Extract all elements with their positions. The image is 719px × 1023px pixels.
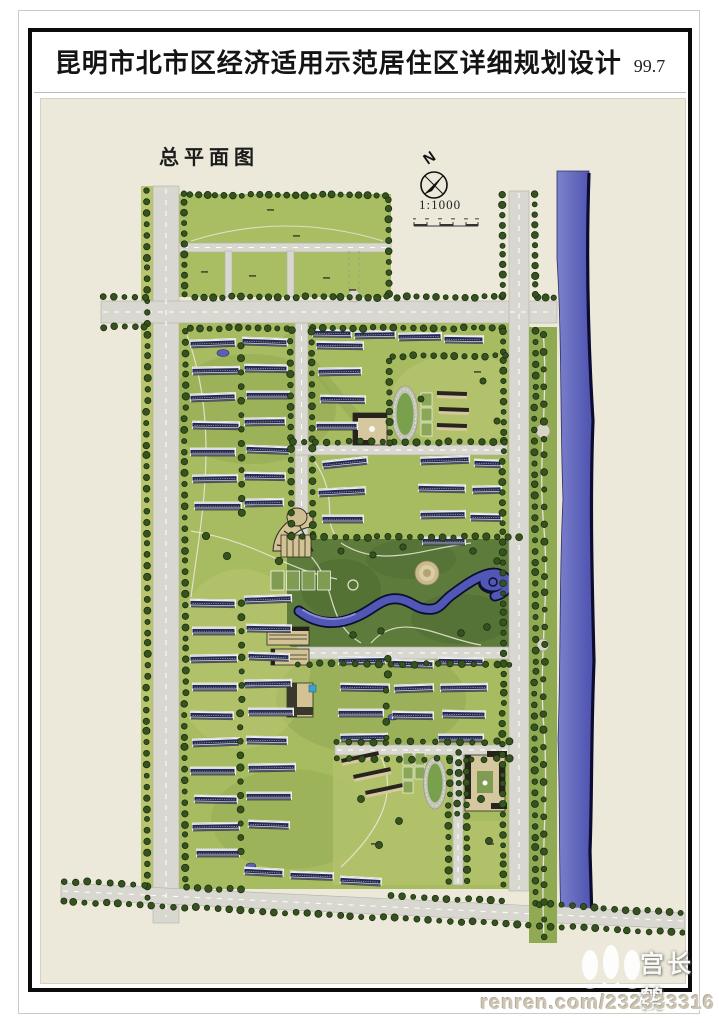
- running-track-north: [392, 386, 418, 442]
- plan-title: 总平面图: [159, 141, 259, 170]
- planning-drawing-page: 昆明市北市区经济适用示范居住区详细规划设计 99.7: [0, 0, 719, 1023]
- watermark-url: renren.com/232333316: [480, 992, 715, 1015]
- scale-label: 1:1000: [419, 197, 461, 213]
- title-band: 昆明市北市区经济适用示范居住区详细规划设计 99.7: [34, 32, 686, 90]
- edition-label: 99.7: [634, 56, 666, 77]
- scale-bar: [413, 217, 479, 231]
- site-plan-graphic: [41, 99, 685, 983]
- river: [557, 171, 594, 923]
- running-track-south: [424, 757, 447, 809]
- watermark-logo: [578, 944, 648, 992]
- north-letter: N: [420, 148, 439, 168]
- title-divider: [34, 92, 686, 93]
- page-title: 昆明市北市区经济适用示范居住区详细规划设计: [55, 43, 622, 80]
- master-plan-panel: 总平面图 N 1:1000: [40, 98, 686, 984]
